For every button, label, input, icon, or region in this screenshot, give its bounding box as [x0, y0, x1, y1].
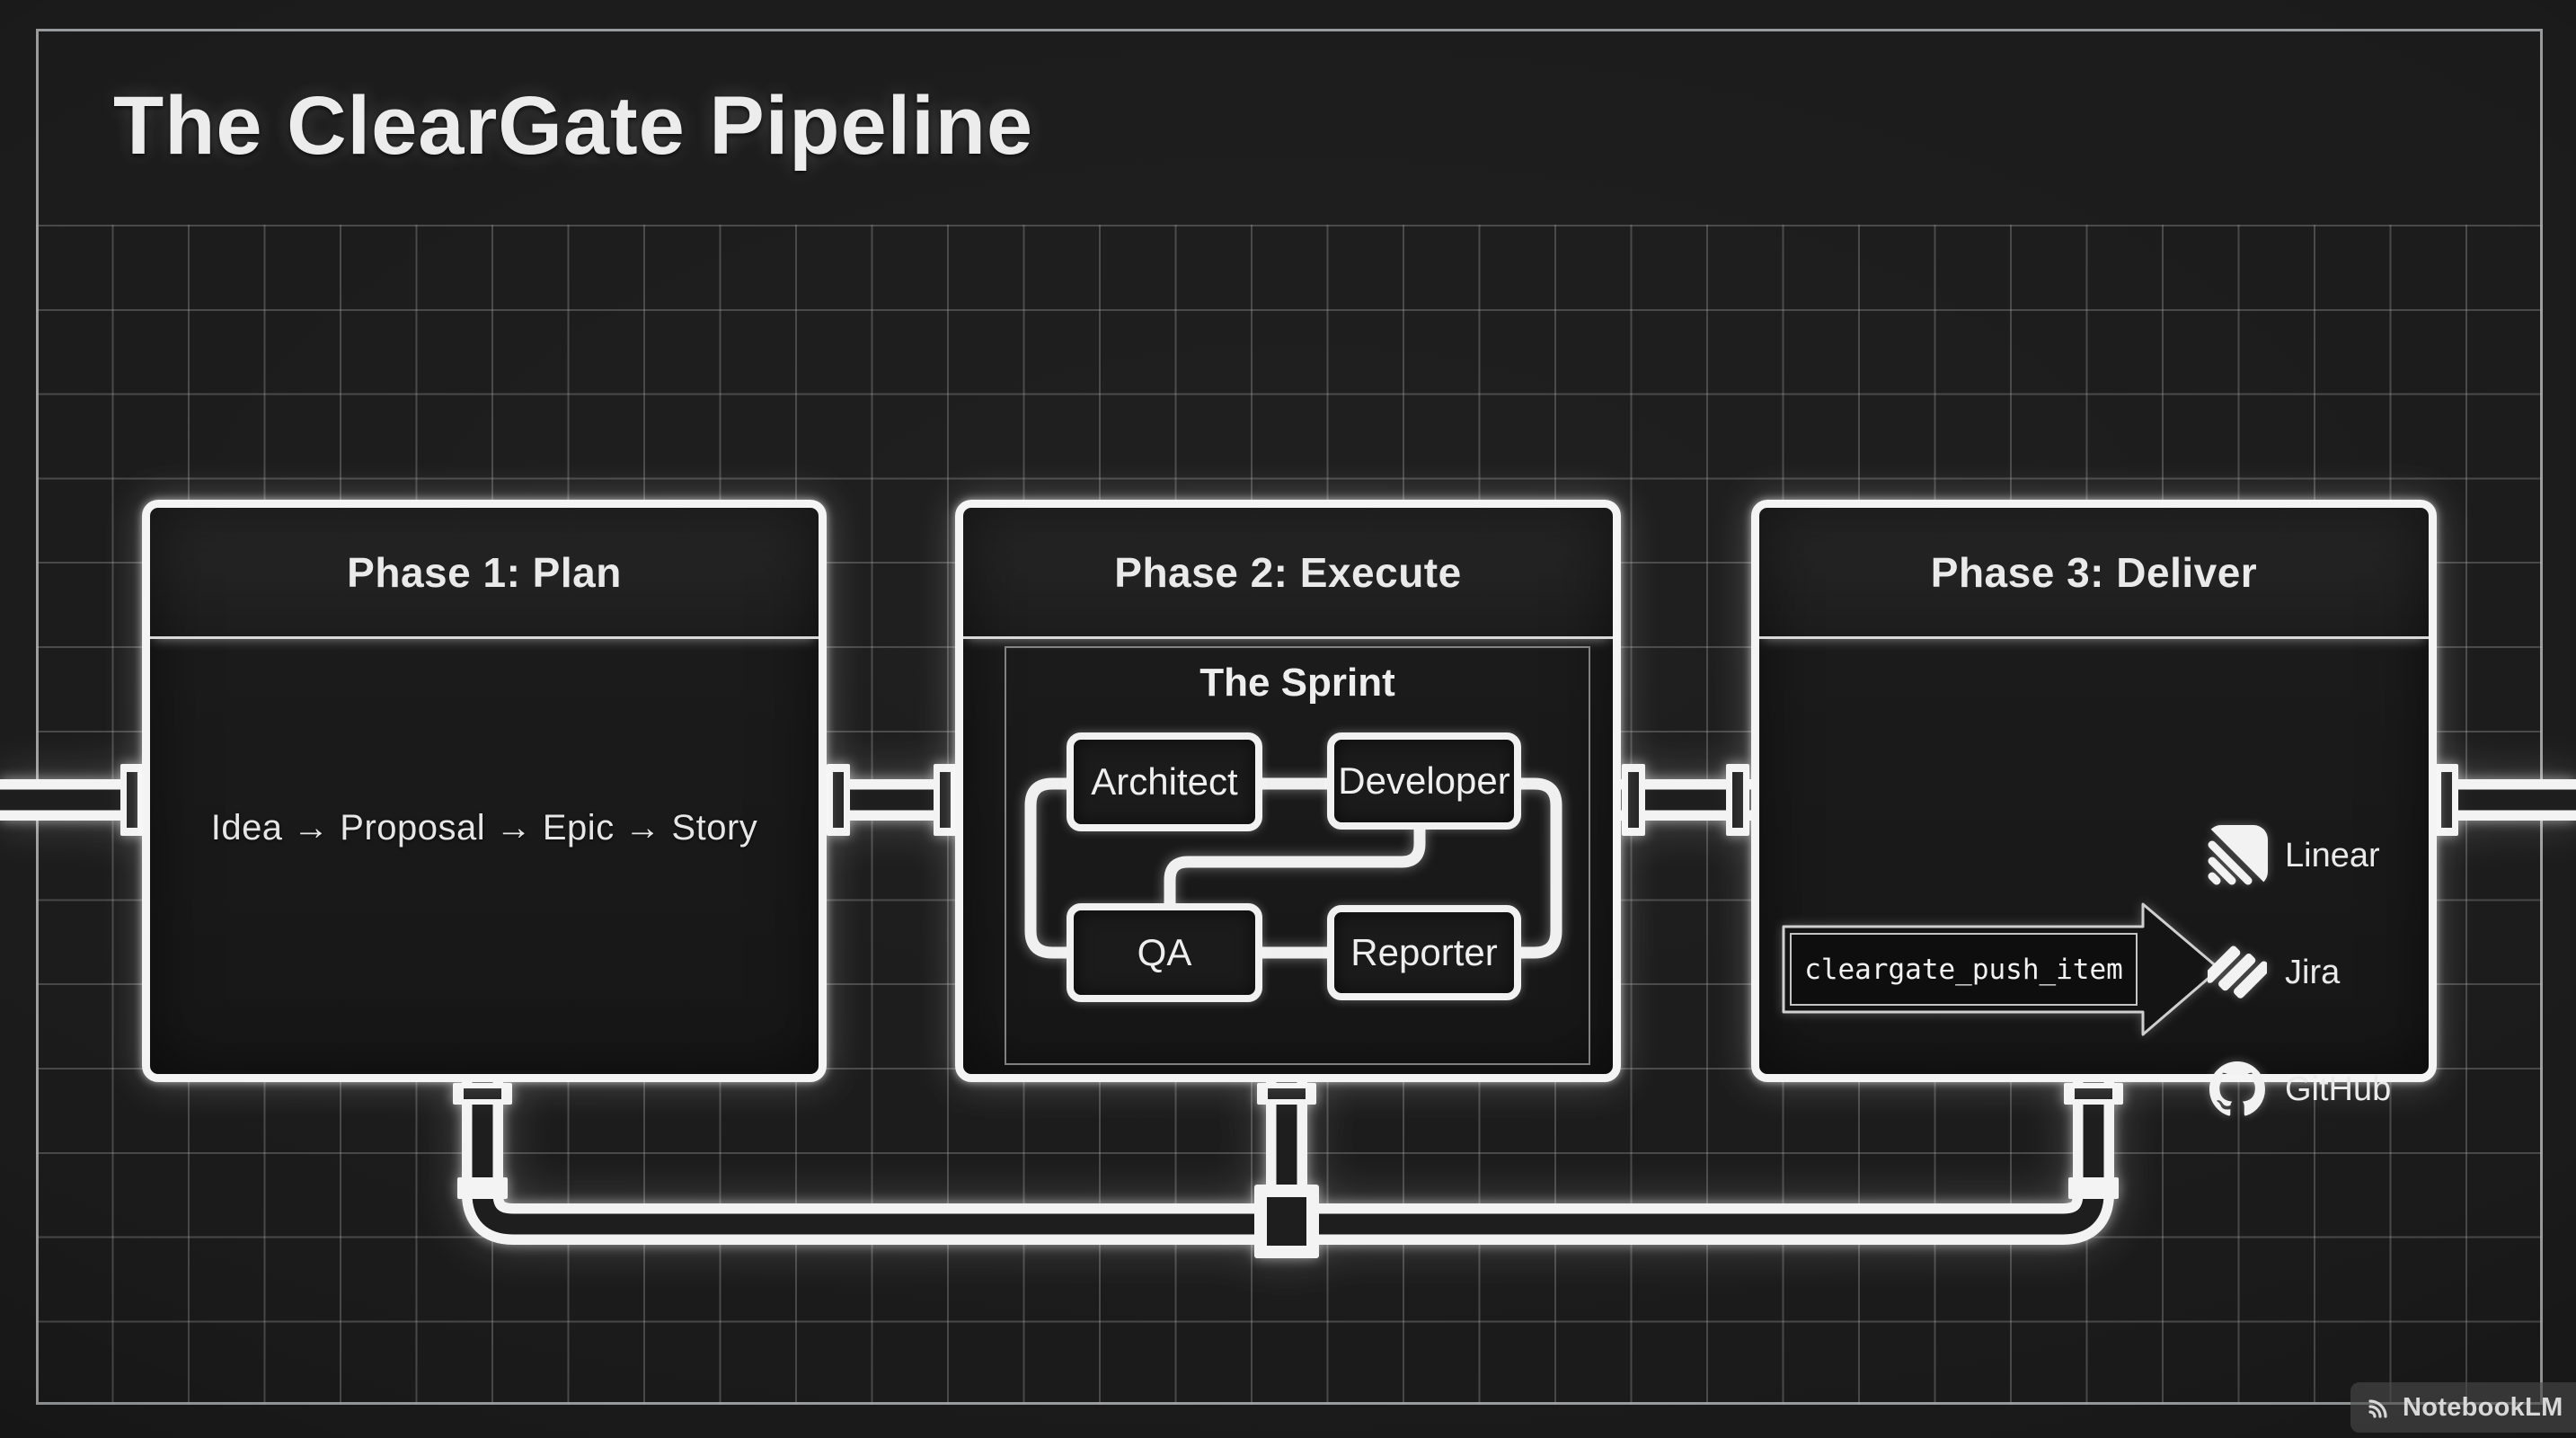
push-command-box: cleargate_push_item [1790, 933, 2138, 1006]
phase-1-box: Phase 1: Plan Idea → Proposal → Epic → S… [142, 500, 827, 1082]
role-box-architect: Architect [1067, 732, 1262, 831]
jira-icon [2208, 943, 2267, 1002]
target-label-linear: Linear [2285, 830, 2380, 881]
phase-3-box: Phase 3: Deliver cleargate_push_item [1751, 500, 2437, 1082]
sprint-container: The Sprint Architect Developer QA Report… [1005, 646, 1590, 1065]
role-box-developer: Developer [1327, 732, 1521, 830]
phase-2-title: Phase 2: Execute [963, 508, 1613, 639]
target-label-github: GitHub [2285, 1064, 2391, 1114]
phase-1-flow-text: Idea → Proposal → Epic → Story [211, 808, 758, 848]
watermark-label: NotebookLM [2403, 1393, 2563, 1423]
linear-icon [2206, 824, 2269, 887]
role-box-reporter: Reporter [1327, 905, 1521, 1000]
phase-3-title: Phase 3: Deliver [1759, 508, 2429, 639]
push-command: cleargate_push_item [1804, 954, 2123, 986]
target-label-jira: Jira [2285, 947, 2340, 998]
role-label-reporter: Reporter [1350, 931, 1497, 974]
role-label-qa: QA [1138, 931, 1192, 974]
phase-2-box: Phase 2: Execute The Sprint Architect De… [955, 500, 1621, 1082]
role-label-architect: Architect [1091, 760, 1237, 803]
github-icon [2209, 1061, 2265, 1117]
role-box-qa: QA [1067, 903, 1262, 1002]
notebooklm-watermark: NotebookLM [2350, 1382, 2576, 1433]
phase-1-title: Phase 1: Plan [150, 508, 819, 639]
notebooklm-icon [2365, 1393, 2394, 1422]
role-label-developer: Developer [1338, 759, 1509, 803]
stage: The ClearGate Pipeline [0, 0, 2576, 1438]
